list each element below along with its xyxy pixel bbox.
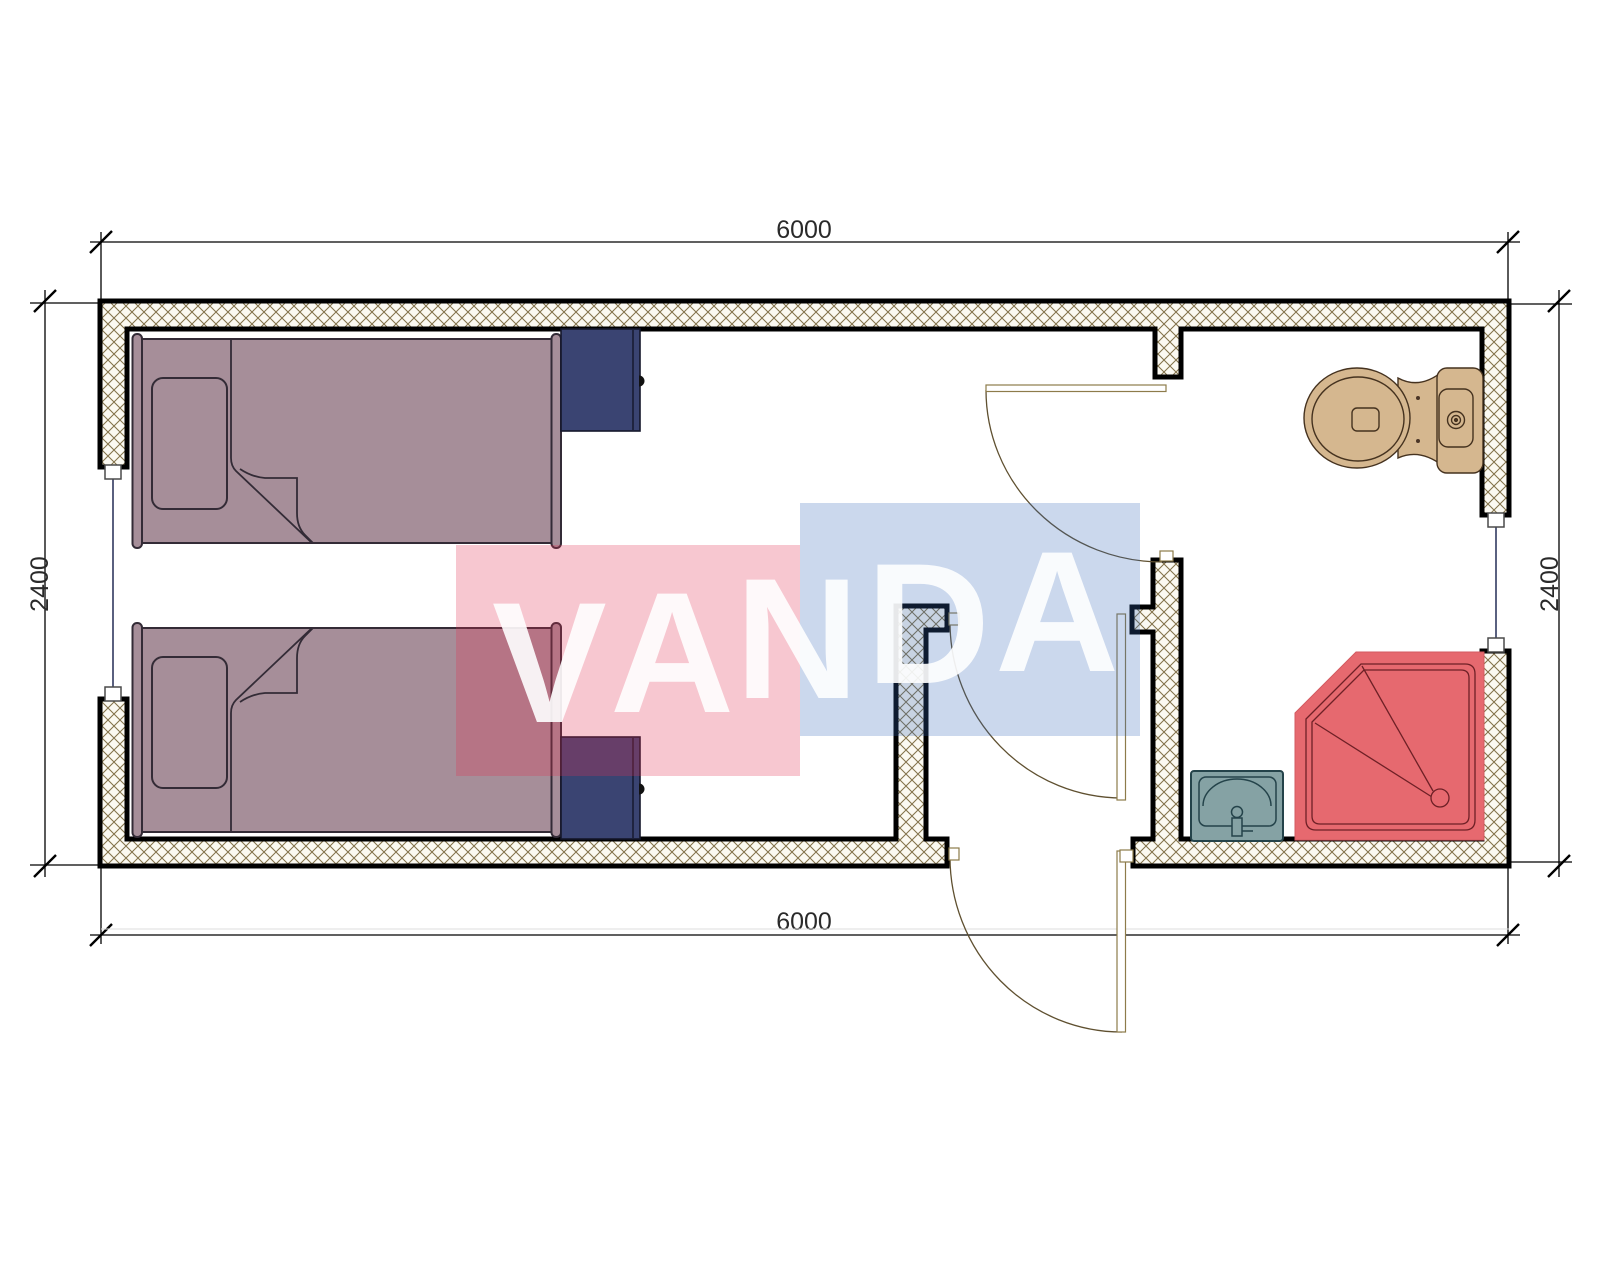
svg-text:2400: 2400	[1536, 556, 1564, 612]
svg-text:6000: 6000	[776, 216, 832, 244]
svg-text:6000: 6000	[776, 908, 832, 936]
svg-text:2400: 2400	[26, 556, 54, 612]
